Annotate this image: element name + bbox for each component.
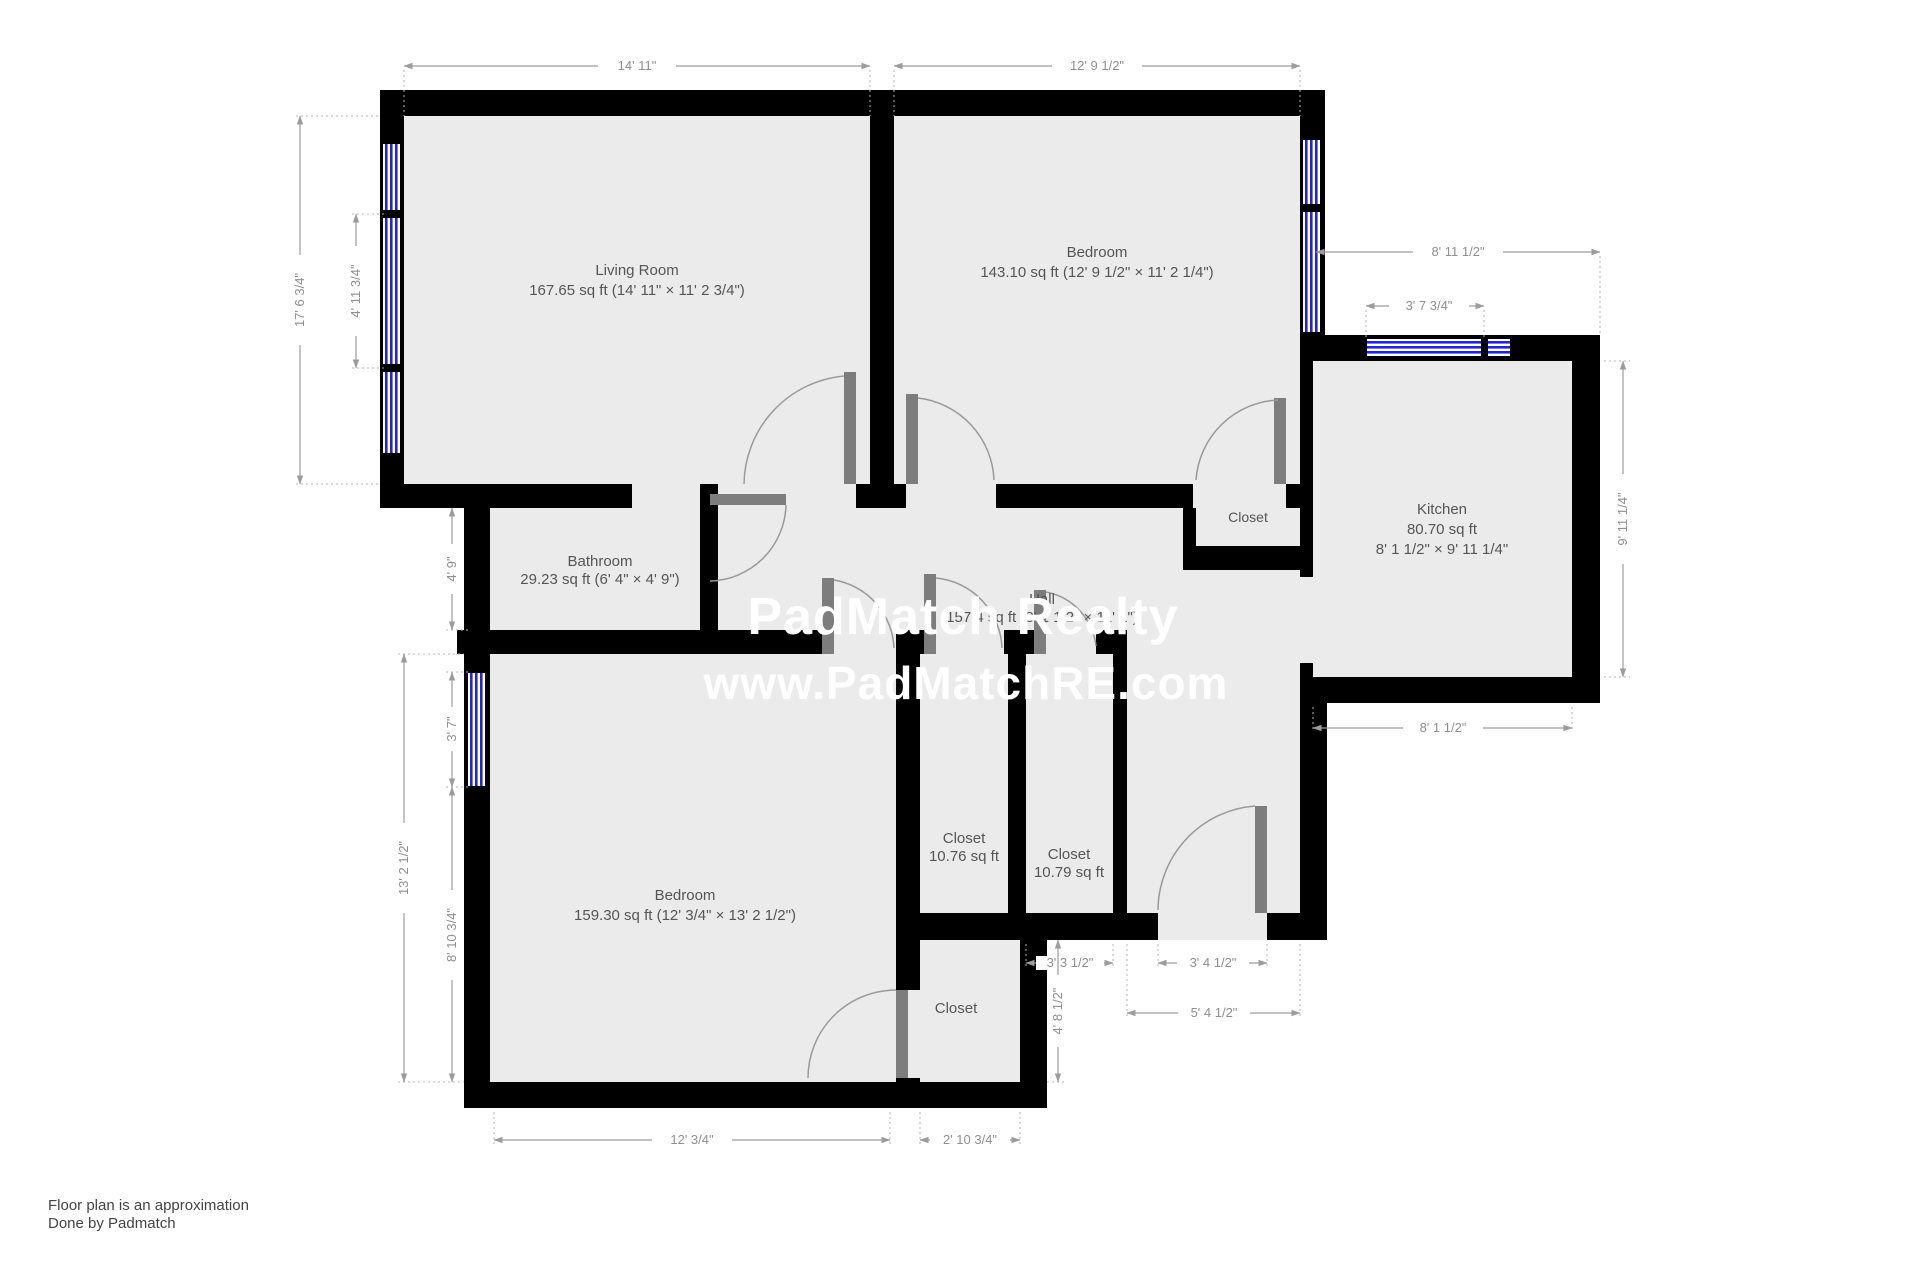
footer-disclaimer: Floor plan is an approximation [48, 1197, 249, 1214]
label-closet2-area: 10.79 sq ft [1034, 864, 1105, 881]
label-kitchen-name: Kitchen [1417, 501, 1467, 518]
dim-kitchen-window: 3' 7 3/4" [1406, 298, 1453, 313]
label-living-room-details: 167.65 sq ft (14' 11" × 11' 2 3/4") [529, 282, 745, 299]
dim-closet3-width: 2' 10 3/4" [943, 1132, 997, 1147]
dim-bathroom-height: 4' 9" [444, 544, 459, 594]
label-closet2-name: Closet [1048, 846, 1091, 863]
label-kitchen-area: 80.70 sq ft [1407, 521, 1478, 538]
watermark-brand: PadMatch Realty [747, 588, 1178, 646]
floor-plan-drawing: 14' 11" 12' 9 1/2" 17' 6 3/4" 4' 11 3/4"… [0, 0, 1920, 1280]
window-kitchen-top [1362, 337, 1515, 358]
dim-closet2-width: 3' 3 1/2" [1047, 955, 1094, 970]
floor-plan-page: 14' 11" 12' 9 1/2" 17' 6 3/4" 4' 11 3/4"… [0, 0, 1920, 1280]
footer: Floor plan is an approximation Done by P… [48, 1197, 249, 1232]
window-living-left [381, 139, 402, 458]
dim-living-window: 4' 11 3/4" [348, 246, 363, 336]
dim-kitchen-height: 9' 11 1/4" [1615, 474, 1630, 564]
floor-kitchen-opening [1300, 577, 1313, 663]
dim-bedroom2-width: 12' 3/4" [670, 1132, 714, 1147]
dim-step-height: 4' 8 1/2" [1050, 975, 1065, 1047]
floor-bedroom-top [894, 116, 1300, 484]
svg-text:13' 2 1/2": 13' 2 1/2" [396, 841, 411, 895]
dim-right-upper: 8' 11 1/2" [1431, 244, 1485, 259]
dim-top-bedroom: 12' 9 1/2" [1070, 58, 1124, 73]
label-bedroom-bottom-details: 159.30 sq ft (12' 3/4" × 13' 2 1/2") [574, 907, 796, 924]
footer-credit: Done by Padmatch [48, 1215, 176, 1232]
floor-kitchen [1313, 361, 1572, 677]
floor-living-room [404, 116, 870, 484]
dim-entry-door: 3' 4 1/2" [1190, 955, 1237, 970]
label-closet1-area: 10.76 sq ft [929, 848, 1000, 865]
label-bedroom-top-name: Bedroom [1067, 244, 1128, 261]
floor-bedroom-bottom [490, 654, 896, 1082]
dim-bedroom2-lower: 8' 10 3/4" [444, 890, 459, 980]
svg-text:4' 8 1/2": 4' 8 1/2" [1050, 987, 1065, 1034]
label-bathroom-name: Bathroom [567, 553, 632, 570]
dim-bedroom2-window: 3' 7" [444, 707, 459, 751]
label-kitchen-dims: 8' 1 1/2" × 9' 11 1/4" [1376, 541, 1508, 558]
dim-bedroom2-height: 13' 2 1/2" [396, 823, 411, 913]
dim-top-living: 14' 11" [618, 58, 657, 73]
svg-text:17' 6 3/4": 17' 6 3/4" [292, 273, 307, 327]
watermark-url: www.PadMatchRE.com [703, 657, 1229, 709]
label-living-room-name: Living Room [595, 262, 678, 279]
label-bedroom-top-details: 143.10 sq ft (12' 9 1/2" × 11' 2 1/4") [980, 264, 1213, 281]
svg-text:9' 11 1/4": 9' 11 1/4" [1615, 492, 1630, 546]
window-bedroom-bottom-left [466, 668, 487, 791]
label-bathroom-details: 29.23 sq ft (6' 4" × 4' 9") [520, 571, 679, 588]
label-closet3-name: Closet [935, 1000, 978, 1017]
dim-entry-bay: 5' 4 1/2" [1191, 1005, 1238, 1020]
label-closet-top-right: Closet [1228, 509, 1268, 525]
label-closet1-name: Closet [943, 830, 986, 847]
svg-text:4' 11 3/4": 4' 11 3/4" [348, 264, 363, 318]
dim-living-height: 17' 6 3/4" [292, 255, 307, 345]
window-bedroom-top-right [1301, 135, 1322, 337]
dim-kitchen-width: 8' 1 1/2" [1420, 720, 1467, 735]
svg-text:8' 10 3/4": 8' 10 3/4" [444, 908, 459, 962]
svg-text:3' 7": 3' 7" [444, 716, 459, 742]
svg-text:4' 9": 4' 9" [444, 556, 459, 582]
label-bedroom-bottom-name: Bedroom [655, 887, 716, 904]
